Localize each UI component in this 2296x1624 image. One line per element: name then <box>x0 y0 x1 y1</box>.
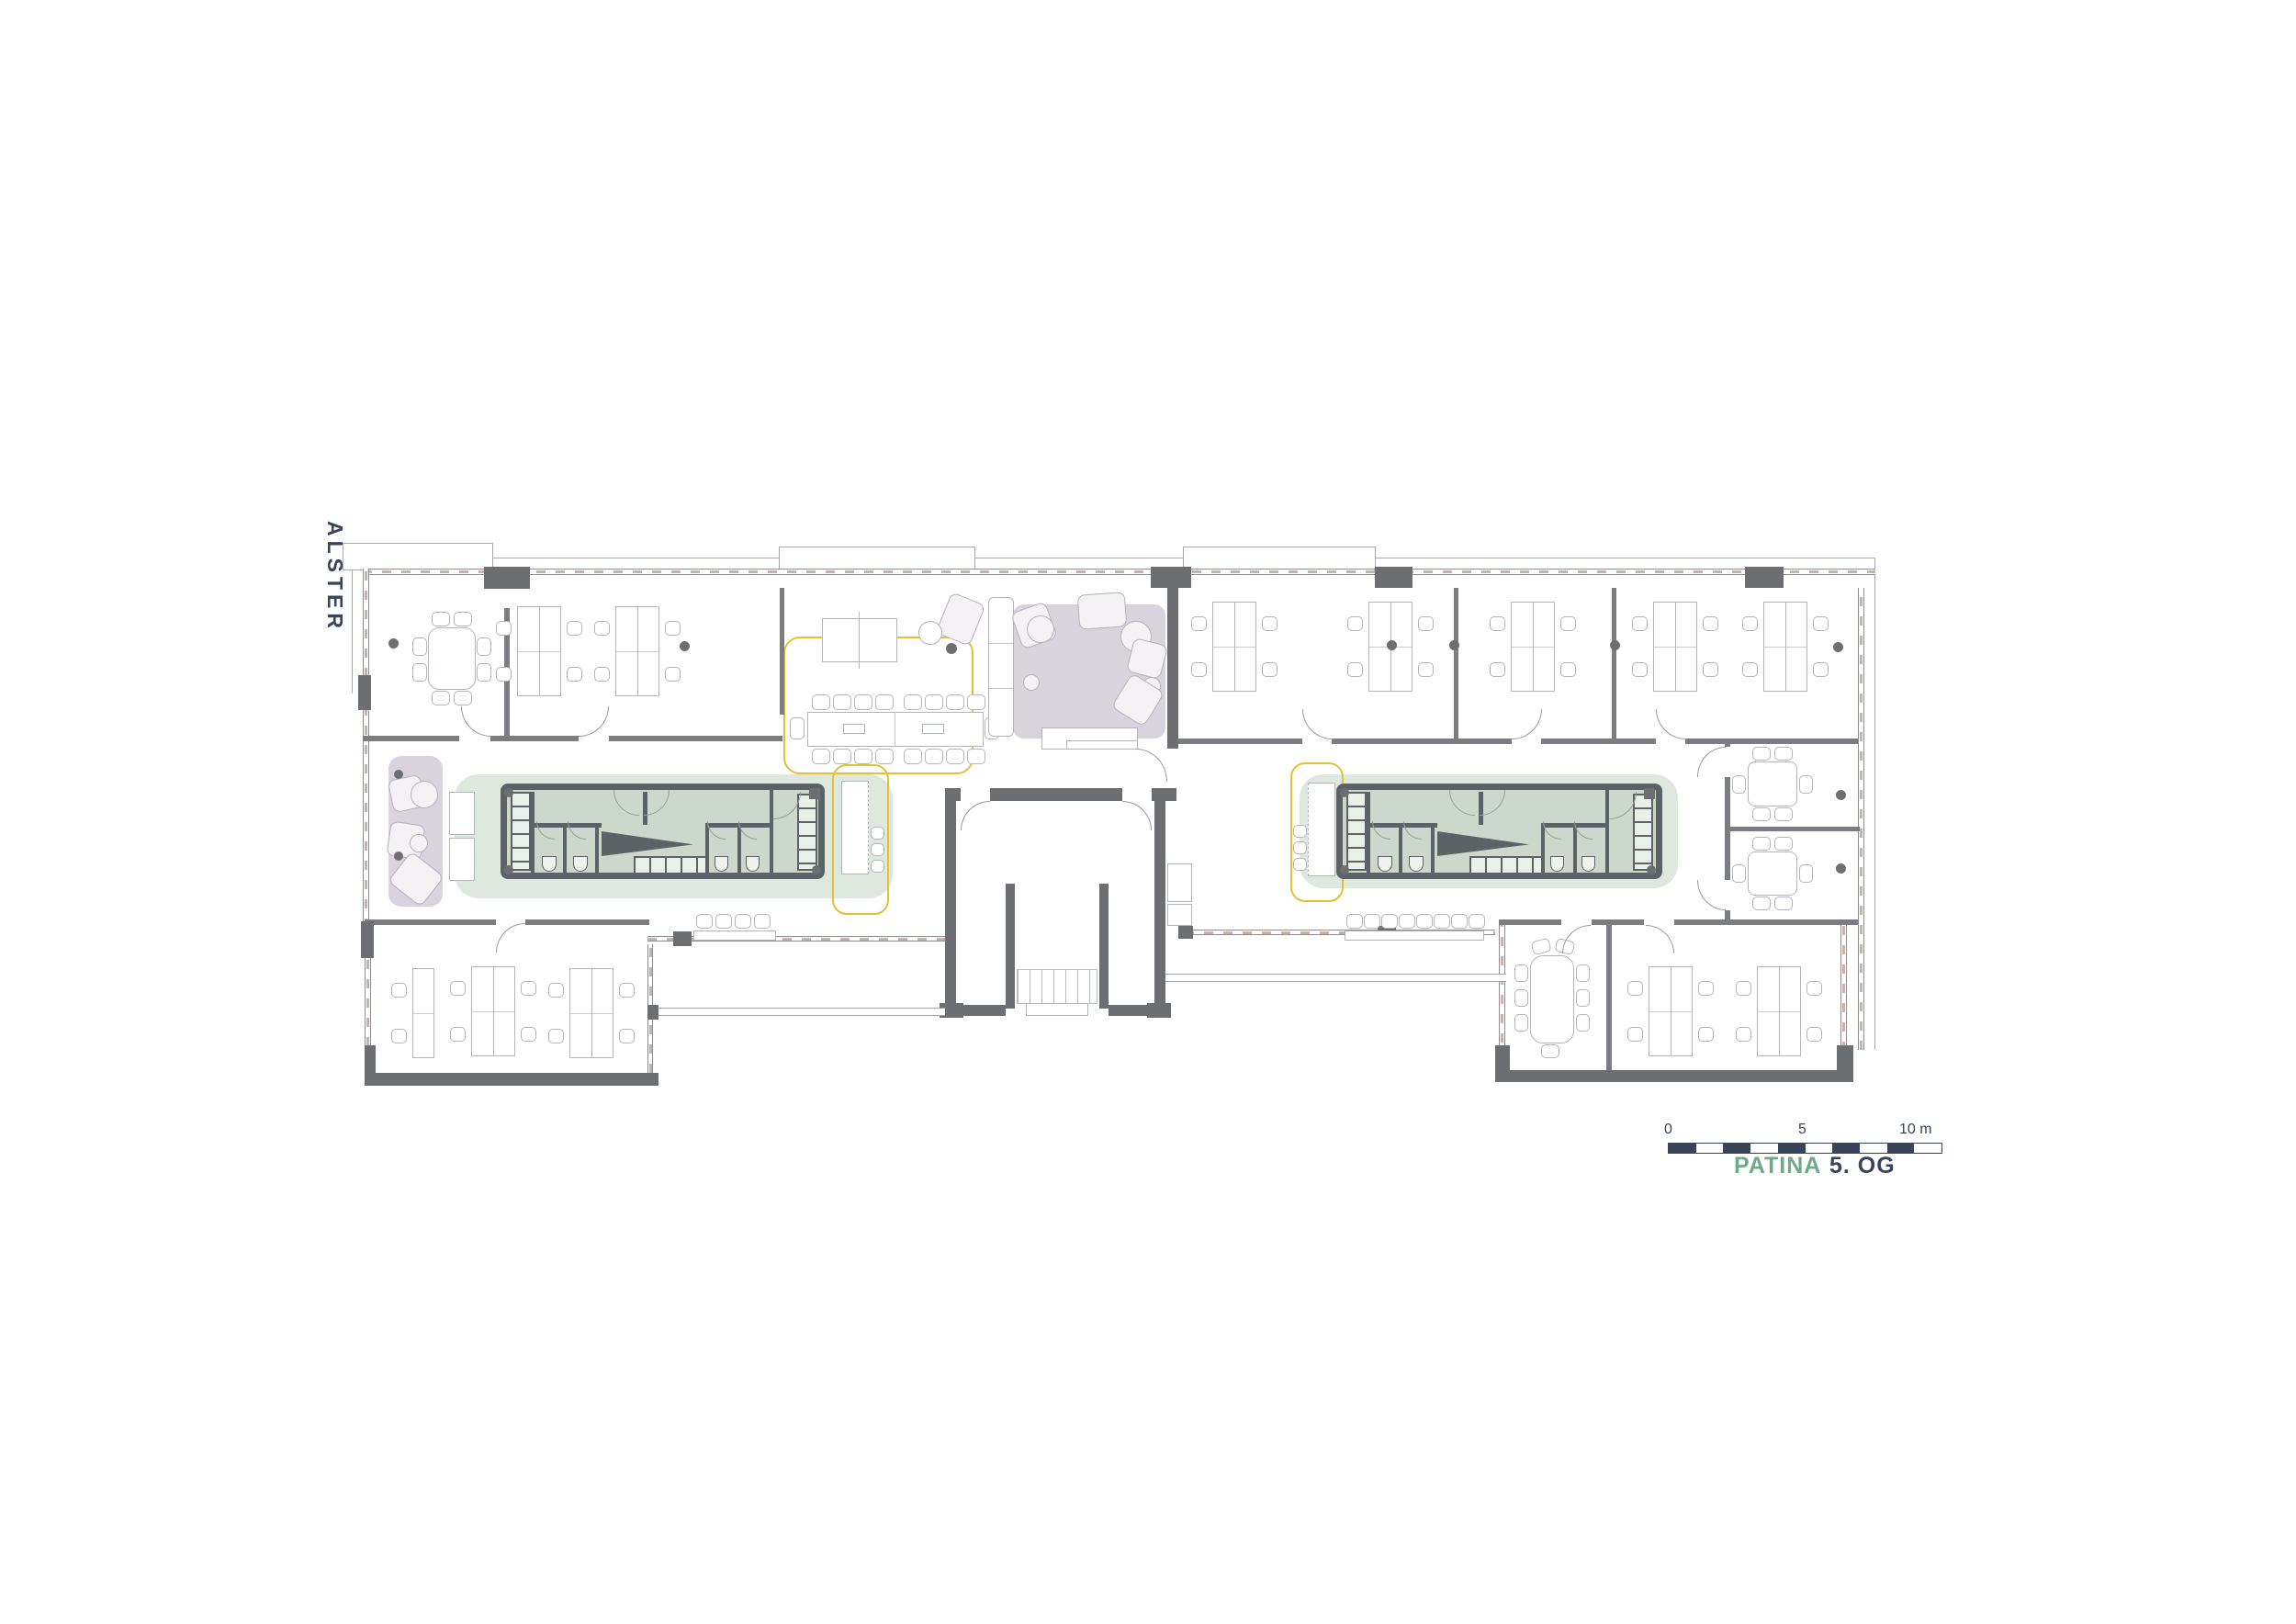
chair <box>925 694 943 710</box>
scale-segment <box>1832 1144 1860 1153</box>
chair <box>454 691 472 705</box>
door-arc <box>496 923 525 953</box>
door-arc <box>1697 880 1726 910</box>
chair <box>1742 662 1758 677</box>
bench-chair <box>1434 914 1450 929</box>
column-dot <box>1836 790 1846 800</box>
chair <box>496 621 512 636</box>
chair <box>925 749 943 764</box>
bench-chair <box>1416 914 1433 929</box>
desk-pod <box>1757 966 1801 1056</box>
desk-pod <box>412 968 434 1058</box>
wall <box>1178 739 1302 744</box>
flip-table <box>822 618 897 662</box>
column-dot <box>394 770 403 779</box>
console <box>1345 930 1484 941</box>
pier <box>1837 1045 1853 1082</box>
chair <box>1262 662 1277 677</box>
column-dot <box>1610 640 1620 650</box>
column-dot <box>1833 642 1843 652</box>
bench-chair <box>754 914 771 929</box>
console <box>693 930 776 941</box>
column-dot <box>504 788 513 797</box>
stool <box>1293 858 1307 871</box>
desk-pod <box>569 968 613 1058</box>
chair <box>946 749 964 764</box>
wall-lobby <box>990 788 1122 801</box>
wall <box>1725 919 1858 925</box>
pier <box>1495 1045 1510 1082</box>
chair <box>619 1029 635 1043</box>
wall-rightwing-west <box>1167 574 1178 749</box>
chair <box>1576 989 1590 1007</box>
cabinet <box>449 838 475 881</box>
column-dot <box>1449 640 1459 650</box>
chair <box>477 663 491 682</box>
chair <box>594 621 610 636</box>
column-dot <box>1836 863 1846 874</box>
chair <box>477 637 491 656</box>
chair <box>1191 616 1207 631</box>
chair <box>1813 616 1829 631</box>
glazing-corridor-left <box>647 936 945 942</box>
chair <box>1774 897 1793 910</box>
wall-meeting-divider <box>1725 827 1860 831</box>
scale-segment <box>1669 1144 1696 1153</box>
chair <box>1347 662 1363 677</box>
chair <box>665 667 681 682</box>
chair <box>1560 662 1576 677</box>
stair-treads <box>1017 969 1097 1004</box>
door-arc <box>1697 747 1726 777</box>
chair <box>548 1029 564 1043</box>
door-arc <box>961 801 990 830</box>
bench-chair <box>1364 914 1380 929</box>
roof-bay <box>1183 547 1376 570</box>
desk-pod <box>1212 602 1256 692</box>
pier <box>673 931 692 946</box>
chair <box>854 749 872 764</box>
kitchen-island <box>1308 783 1335 876</box>
bench-chair <box>1346 914 1363 929</box>
wall <box>1332 739 1512 744</box>
terrace-railing <box>658 1008 945 1016</box>
door-arc <box>1562 925 1591 953</box>
chair <box>1736 981 1751 996</box>
core-wall <box>705 823 709 873</box>
bench-chair <box>1399 914 1415 929</box>
wall-lobby <box>1152 788 1176 801</box>
chair <box>1774 747 1793 761</box>
chair <box>594 667 610 682</box>
meeting-table <box>1748 851 1797 896</box>
wall-stair-stub <box>1006 884 1015 1009</box>
desk-pod <box>615 606 659 696</box>
door-arc <box>1512 709 1542 739</box>
wall-right <box>1858 588 1864 1050</box>
table-item <box>922 724 944 734</box>
toilet <box>1550 856 1564 872</box>
column-dot <box>394 851 403 861</box>
wall-left <box>363 569 369 928</box>
desk-pod <box>471 966 515 1056</box>
elevator <box>1026 1003 1088 1016</box>
chair <box>1541 1044 1559 1058</box>
toilet <box>1581 856 1595 872</box>
parapet-left <box>352 558 363 694</box>
wall <box>1109 1005 1147 1016</box>
toilet <box>542 856 557 872</box>
core-bench <box>1469 856 1543 874</box>
column-dot <box>680 641 690 651</box>
scale-segment <box>1750 1144 1778 1153</box>
wall-office1-east <box>780 588 784 715</box>
pier <box>1375 567 1412 588</box>
chair <box>1774 837 1793 851</box>
long-table <box>807 712 984 747</box>
wall-office-ab <box>1454 588 1458 744</box>
chair <box>1576 964 1590 982</box>
sofa <box>988 597 1014 737</box>
chair <box>391 983 407 998</box>
toilet <box>573 856 588 872</box>
chair <box>1347 616 1363 631</box>
chair <box>854 694 872 710</box>
chair <box>1703 616 1718 631</box>
desk-pod <box>1511 602 1555 692</box>
chair <box>1742 616 1758 631</box>
lockers <box>1346 792 1367 871</box>
pier <box>1178 926 1193 939</box>
stool <box>871 843 884 856</box>
chair <box>619 983 635 998</box>
wall-blroom-bottom <box>365 1073 658 1086</box>
chair <box>1752 837 1771 851</box>
chair <box>432 691 450 705</box>
scale-segment <box>1860 1144 1887 1153</box>
chair <box>1774 807 1793 821</box>
column-dot <box>812 865 821 874</box>
door-arc <box>461 706 491 737</box>
column-dot <box>1387 640 1397 650</box>
side-table <box>1023 674 1040 691</box>
side-table <box>1027 615 1054 643</box>
chair <box>432 612 450 626</box>
parapet-right <box>1863 558 1875 1050</box>
chair <box>391 1029 407 1043</box>
wall <box>609 736 782 741</box>
loveseat <box>1077 592 1128 630</box>
roof-bay <box>779 547 975 570</box>
shaft <box>809 788 820 799</box>
wall-core-west <box>945 801 956 1018</box>
roof-bay <box>343 543 493 570</box>
wall-lobby <box>945 788 961 801</box>
chair <box>521 981 536 996</box>
chair <box>412 663 427 682</box>
chair <box>946 694 964 710</box>
pier <box>358 675 371 710</box>
chair <box>1632 616 1648 631</box>
chair <box>1799 775 1813 794</box>
sideboard <box>1066 740 1138 750</box>
pier <box>1151 567 1191 588</box>
door-arc <box>1122 801 1152 830</box>
core-bench <box>634 856 707 874</box>
column-dot <box>504 865 513 874</box>
side-table <box>411 781 438 808</box>
scale-tick-10: 10 m <box>1899 1122 1932 1138</box>
water-label: ALSTER <box>320 516 351 637</box>
chair <box>1514 1014 1528 1032</box>
chair <box>1806 1027 1822 1042</box>
chair <box>1799 864 1813 883</box>
chair <box>1698 1027 1714 1042</box>
chair <box>1514 964 1528 982</box>
wall-top <box>363 569 1875 575</box>
bench-chair <box>1469 914 1485 929</box>
chair <box>875 749 894 764</box>
chair <box>833 749 851 764</box>
wall <box>1725 910 1730 921</box>
wall <box>363 736 459 741</box>
core-wall <box>531 792 535 873</box>
chair <box>1703 662 1718 677</box>
terrace-railing <box>1165 974 1506 982</box>
chair <box>1806 981 1822 996</box>
core-wall <box>1367 792 1370 873</box>
chair <box>496 667 512 682</box>
chair <box>1732 864 1746 883</box>
cabinet <box>1167 863 1192 902</box>
stool <box>871 827 884 840</box>
chair <box>567 667 582 682</box>
column-dot <box>388 638 399 648</box>
bench-chair <box>1381 914 1398 929</box>
conference-table <box>428 627 476 690</box>
wall-brwing-bottom <box>1495 1070 1853 1082</box>
scale-segment <box>1887 1144 1915 1153</box>
wall <box>365 919 496 925</box>
wall <box>1499 919 1561 925</box>
chair <box>1732 775 1746 794</box>
chair <box>1576 1014 1590 1032</box>
conference-table <box>1530 955 1574 1043</box>
core-wall <box>1399 823 1402 873</box>
chair <box>548 983 564 998</box>
core-wall <box>563 823 567 873</box>
cabinet <box>449 792 475 835</box>
chair <box>450 981 466 996</box>
wall-brwing-divider <box>1606 921 1612 1070</box>
chair <box>875 694 894 710</box>
pier <box>361 921 374 958</box>
railing-post <box>647 1005 658 1020</box>
chair <box>1418 662 1434 677</box>
desk-pod <box>1649 966 1693 1056</box>
toilet <box>1409 856 1424 872</box>
bench-chair <box>735 914 751 929</box>
toilet <box>1378 856 1392 872</box>
chair <box>1698 981 1714 996</box>
scale-segment <box>1914 1144 1941 1153</box>
divider-line <box>859 612 860 669</box>
bench-chair <box>715 914 732 929</box>
chair <box>1752 747 1771 761</box>
divider-line <box>895 712 895 747</box>
chair <box>904 694 922 710</box>
scale-segment <box>1696 1144 1724 1153</box>
core-wall <box>1541 823 1545 873</box>
chair <box>1627 1027 1643 1042</box>
chair <box>412 637 427 656</box>
toilet <box>746 856 760 872</box>
side-table <box>918 621 942 645</box>
core-wall <box>595 823 599 873</box>
chair <box>665 621 681 636</box>
scale-segment <box>1806 1144 1833 1153</box>
chair <box>1560 616 1576 631</box>
wall-office-bc <box>1612 588 1616 744</box>
chair <box>1262 616 1277 631</box>
project-label: PATINA <box>1734 1153 1821 1179</box>
column-dot <box>946 643 957 654</box>
desk-pod <box>517 606 561 696</box>
wall <box>1147 1003 1171 1018</box>
side-table <box>410 834 428 852</box>
desk-pod <box>1763 602 1807 692</box>
chair <box>1490 616 1505 631</box>
lockers <box>511 792 531 871</box>
bench-chair <box>1451 914 1468 929</box>
door-arc <box>579 706 609 737</box>
shaft <box>1644 788 1655 799</box>
scale-tick-5: 5 <box>1798 1122 1806 1138</box>
chair <box>790 717 805 739</box>
chair <box>1418 616 1434 631</box>
floor-label: 5. OG <box>1829 1153 1896 1179</box>
toilet <box>715 856 728 872</box>
desk-pod <box>1653 602 1697 692</box>
chair <box>1752 897 1771 910</box>
wall <box>1541 739 1656 744</box>
chair <box>833 694 851 710</box>
scale-segment <box>1723 1144 1750 1153</box>
chair <box>1530 938 1551 956</box>
bench-chair <box>696 914 713 929</box>
chair <box>1632 662 1648 677</box>
scale-tick-0: 0 <box>1664 1122 1672 1138</box>
floor-plan: ALSTER 0 5 10 m PATINA 5. OG <box>0 0 2296 1624</box>
pier <box>484 567 530 589</box>
wall-core-east <box>1154 801 1165 1018</box>
wall-stair-stub <box>1099 884 1109 1009</box>
pier <box>1745 567 1784 588</box>
stool <box>1293 825 1307 838</box>
lockers <box>797 794 817 871</box>
door-arc <box>1136 749 1167 782</box>
chair <box>521 1027 536 1042</box>
table-item <box>843 724 865 734</box>
stool <box>1293 841 1307 854</box>
wall <box>956 1005 1006 1016</box>
pier <box>365 1045 376 1075</box>
chair <box>454 612 472 626</box>
chair <box>1813 662 1829 677</box>
chair <box>812 749 830 764</box>
lockers <box>1633 794 1653 871</box>
chair <box>967 749 985 764</box>
column-dot <box>1340 865 1349 874</box>
chair <box>567 621 582 636</box>
door-arc <box>1302 709 1333 739</box>
wall <box>525 919 649 925</box>
door-arc <box>1646 925 1674 953</box>
chair <box>904 749 922 764</box>
wall <box>1685 739 1858 744</box>
scale-segment <box>1778 1144 1806 1153</box>
core-wall <box>1431 823 1435 873</box>
chair <box>1752 807 1771 821</box>
stool <box>871 860 884 873</box>
chair <box>1736 1027 1751 1042</box>
column-dot <box>1647 865 1656 874</box>
wall <box>1674 919 1725 925</box>
wall <box>1592 919 1644 925</box>
chair <box>1490 662 1505 677</box>
door-arc <box>1656 709 1686 739</box>
chair <box>450 1027 466 1042</box>
cabinet <box>1167 904 1192 926</box>
meeting-table <box>1748 761 1797 806</box>
chair <box>812 694 830 710</box>
kitchen-island <box>841 781 869 874</box>
column-dot <box>1340 788 1349 797</box>
chair <box>1191 662 1207 677</box>
chair <box>1627 981 1643 996</box>
chair <box>1514 989 1528 1007</box>
chair <box>967 694 985 710</box>
